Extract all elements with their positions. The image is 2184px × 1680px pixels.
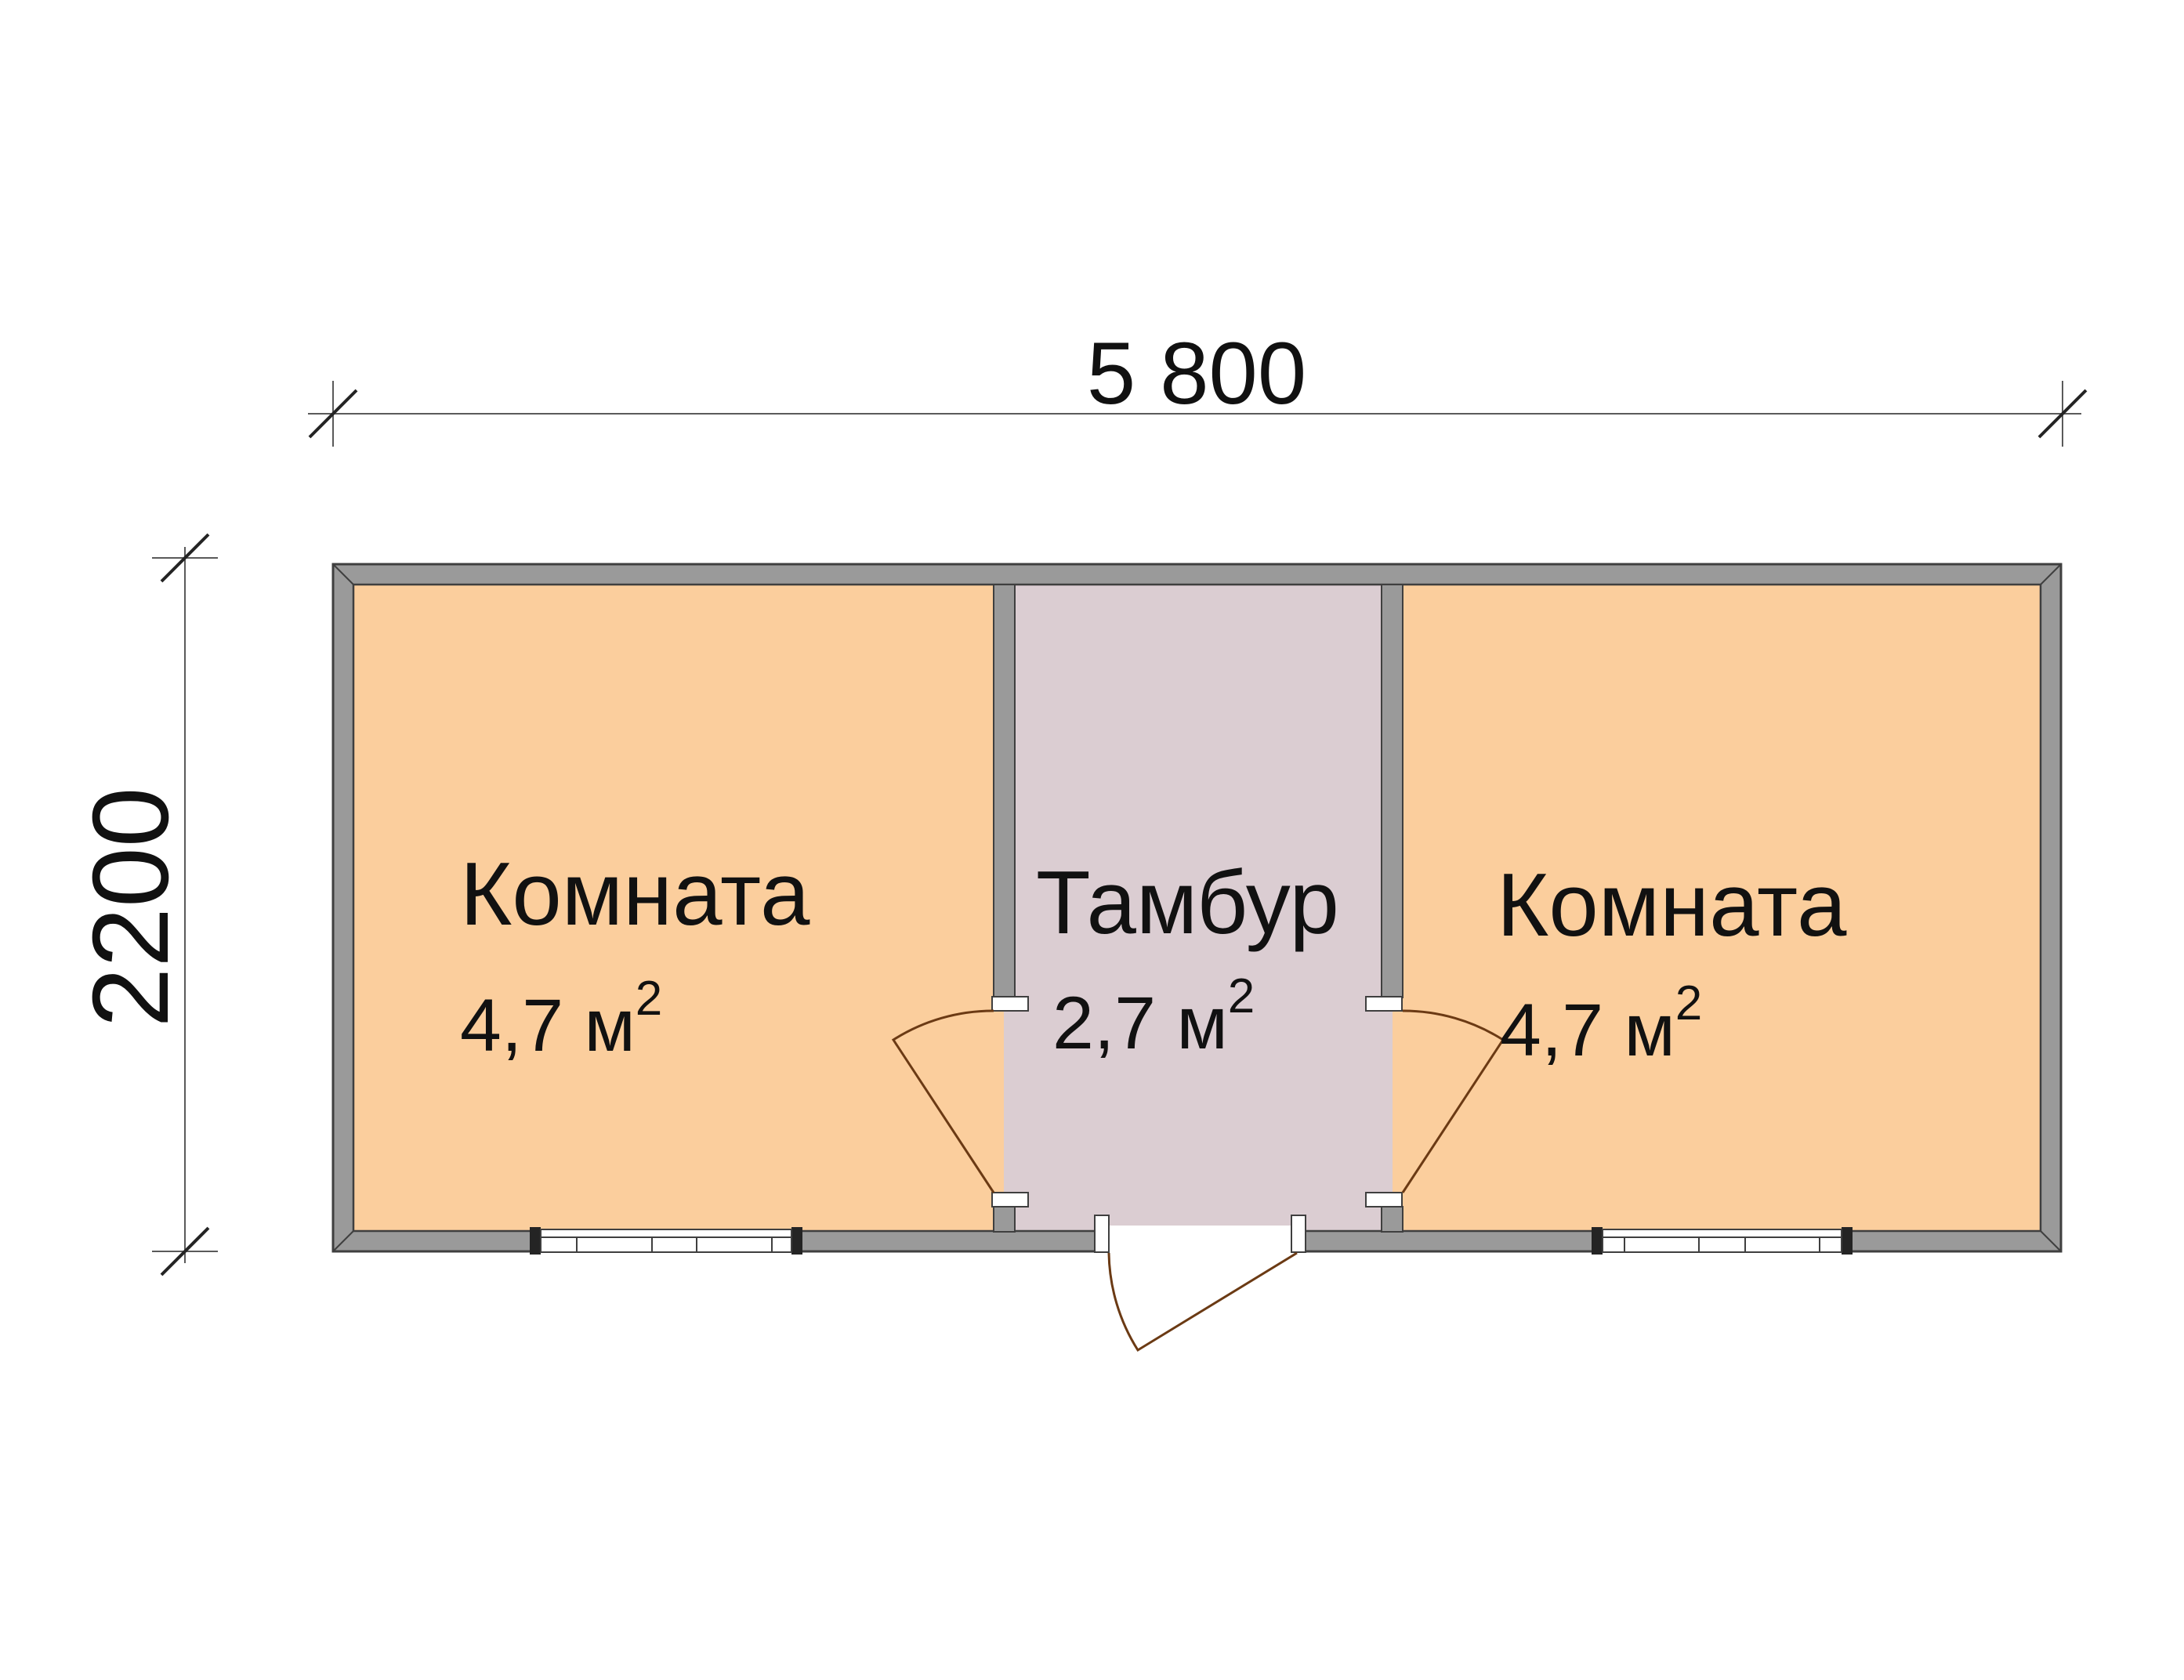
door-left-jamb-top xyxy=(992,997,1028,1011)
vestibule-area: 2,7 м2 xyxy=(1052,969,1255,1065)
entrance-jamb-right xyxy=(1291,1215,1306,1252)
window-left-frame xyxy=(541,1229,791,1252)
room-right-area-sup: 2 xyxy=(1675,976,1702,1030)
dimension-width-label: 5 800 xyxy=(1087,324,1306,422)
entrance-jamb-left xyxy=(1095,1215,1109,1252)
partition-left-stub xyxy=(994,1207,1015,1232)
window-left-cap-left xyxy=(530,1227,541,1255)
room-left-area-sup: 2 xyxy=(636,972,662,1026)
window-left xyxy=(530,1227,802,1255)
floor-plan: 5 800 2200 xyxy=(0,0,2184,1680)
window-right-frame xyxy=(1603,1229,1842,1252)
room-left-area: 4,7 м2 xyxy=(460,972,662,1067)
dimension-height: 2200 xyxy=(71,534,218,1275)
entrance xyxy=(1095,1215,1306,1350)
door-right-jamb-top xyxy=(1366,997,1402,1011)
room-right-area-value: 4,7 м xyxy=(1500,989,1675,1072)
dimension-width: 5 800 xyxy=(308,324,2086,447)
vestibule-area-value: 2,7 м xyxy=(1052,982,1228,1065)
door-left-jamb-bottom xyxy=(992,1193,1028,1207)
window-left-cap-right xyxy=(791,1227,802,1255)
door-right-jamb-bottom xyxy=(1366,1193,1402,1207)
partition-right xyxy=(1382,585,1403,997)
dimension-height-label: 2200 xyxy=(71,787,191,1028)
window-right-cap-right xyxy=(1842,1227,1853,1255)
room-right-area: 4,7 м2 xyxy=(1500,976,1702,1072)
window-right xyxy=(1592,1227,1853,1255)
entrance-door-swing xyxy=(1109,1253,1297,1350)
entrance-opening xyxy=(1109,1226,1291,1255)
window-right-cap-left xyxy=(1592,1227,1603,1255)
room-left-name: Комната xyxy=(460,845,810,944)
room-left-area-value: 4,7 м xyxy=(460,984,636,1067)
room-right-name: Комната xyxy=(1497,856,1847,955)
partition-left xyxy=(994,585,1015,997)
partition-right-stub xyxy=(1382,1207,1403,1232)
vestibule-name: Тамбур xyxy=(1036,853,1339,953)
vestibule-area-sup: 2 xyxy=(1228,969,1255,1023)
